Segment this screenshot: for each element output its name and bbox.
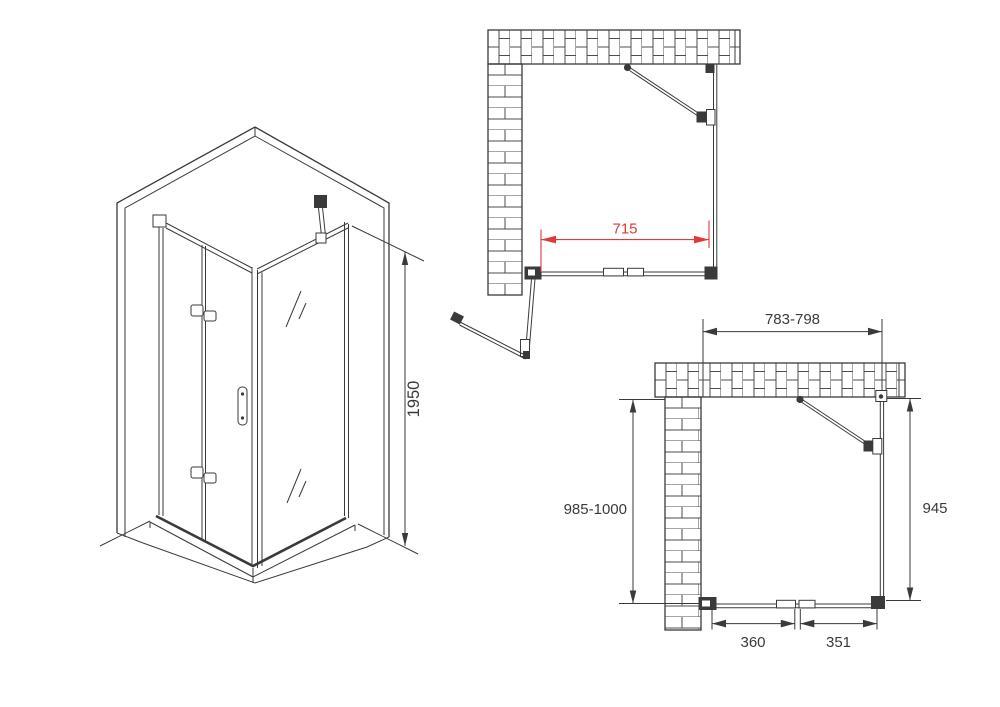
wall-left [665, 397, 701, 630]
hinge-slot [702, 601, 710, 607]
side-panel-right-edge [345, 222, 349, 518]
opening-width-dimension: 715 [541, 221, 709, 273]
arrow-up-icon [402, 252, 408, 265]
right-wall-outer-edge [255, 127, 389, 537]
drawing-sheet: 1950 [0, 0, 1000, 707]
support-bar-glass-clamp [316, 233, 326, 243]
dimension-extension-lines [886, 399, 921, 601]
corner-post [252, 267, 262, 568]
handle-mount-dot [241, 416, 244, 419]
hinge-slot [528, 270, 535, 276]
door-handle-block [799, 600, 815, 608]
support-bar-glass-clamp [873, 439, 882, 455]
tray-bottom-edge [143, 543, 367, 583]
arrow-up-icon [907, 399, 914, 412]
wall-bottom-edges [117, 533, 389, 547]
arrow-down-icon [402, 533, 408, 546]
support-bar-wall-bracket [314, 195, 327, 208]
support-bar-rod [319, 208, 326, 237]
door-wall-profile [159, 227, 163, 516]
door-panel-b [457, 321, 526, 360]
glass-side-panel [876, 391, 887, 605]
door-panel-dimensions: 360 351 [712, 609, 877, 651]
fold-hinge-lower [191, 467, 216, 483]
support-bar [796, 396, 881, 454]
arrow-up-icon [630, 400, 637, 413]
arrow-right-icon [868, 328, 882, 336]
left-door-panel-dimension-label: 360 [740, 634, 765, 651]
support-bar-wall-pivot [796, 396, 803, 403]
wall-profile-cap [153, 215, 166, 227]
right-height-dimension: 945 [886, 399, 948, 601]
height-dimension: 1950 [352, 226, 424, 546]
dimension-extension-lines [712, 609, 877, 630]
arrow-left-icon [800, 620, 814, 628]
arrow-left-icon [712, 620, 726, 628]
corner-bracket [705, 267, 718, 280]
arrow-right-icon [863, 620, 877, 628]
support-bar [314, 195, 327, 243]
side-panel-glass [714, 64, 717, 277]
overall-width-dimension-label: 783-798 [765, 311, 820, 328]
side-panel-glass [880, 397, 883, 604]
tray-rail [156, 516, 346, 566]
door-rail [699, 596, 886, 610]
door-handle-block [628, 268, 644, 276]
arrow-right-icon [694, 236, 709, 244]
bifold-door [153, 215, 262, 568]
handle-mount-dot [241, 392, 244, 395]
dimension-extension-line [352, 226, 424, 261]
panel-top-fitting [706, 64, 715, 73]
support-bar-wall-pivot [624, 64, 631, 71]
door-handle [238, 387, 247, 425]
left-wall-inner-edge [125, 136, 255, 537]
door-handle-block [604, 268, 624, 276]
left-wall-outer-edge [117, 127, 255, 533]
fixed-side-panel [257, 222, 349, 518]
left-height-dimension-label: 985-1000 [564, 501, 627, 518]
wall-left [488, 64, 522, 295]
glass-shine-marks [286, 291, 306, 503]
isometric-view: 1950 [100, 127, 424, 583]
floor-extension-right [358, 524, 418, 554]
wall-top [488, 30, 740, 64]
arrow-left-icon [703, 328, 717, 336]
right-door-panel-dimension-label: 351 [826, 634, 851, 651]
door-top-edge [166, 223, 252, 273]
door-fold-line [202, 245, 206, 541]
support-bar-bracket [864, 441, 874, 452]
panel-top-fitting-pin [879, 394, 883, 398]
technical-drawing: 1950 [0, 0, 1000, 707]
top-plan-view: 715 [450, 30, 740, 359]
corner-bracket [871, 596, 885, 609]
support-bar-glass-clamp [707, 110, 716, 126]
glass-side-panel [706, 64, 717, 277]
support-bar [624, 64, 715, 125]
arrow-left-icon [541, 236, 556, 244]
support-bar-bracket [697, 112, 707, 123]
fold-hinge-upper [191, 305, 216, 321]
right-height-dimension-label: 945 [923, 500, 948, 517]
side-panel-top-edge [257, 223, 348, 274]
door-rail [525, 267, 718, 280]
arrow-down-icon [630, 591, 637, 604]
front-plan-view: 783-798 985-1000 945 [564, 311, 948, 651]
hinge-knuckle-icon [204, 473, 216, 483]
support-bar-rod [628, 66, 706, 121]
wall-top [655, 363, 905, 397]
hinge-knuckle-icon [191, 305, 203, 316]
arrow-down-icon [907, 588, 914, 601]
hinge-knuckle-icon [191, 467, 203, 478]
height-dimension-label: 1950 [405, 381, 423, 418]
arrow-right-icon [781, 620, 795, 628]
opening-width-dimension-label: 715 [612, 221, 637, 238]
hinge-knuckle-icon [204, 311, 216, 321]
door-handle-block [777, 600, 796, 608]
